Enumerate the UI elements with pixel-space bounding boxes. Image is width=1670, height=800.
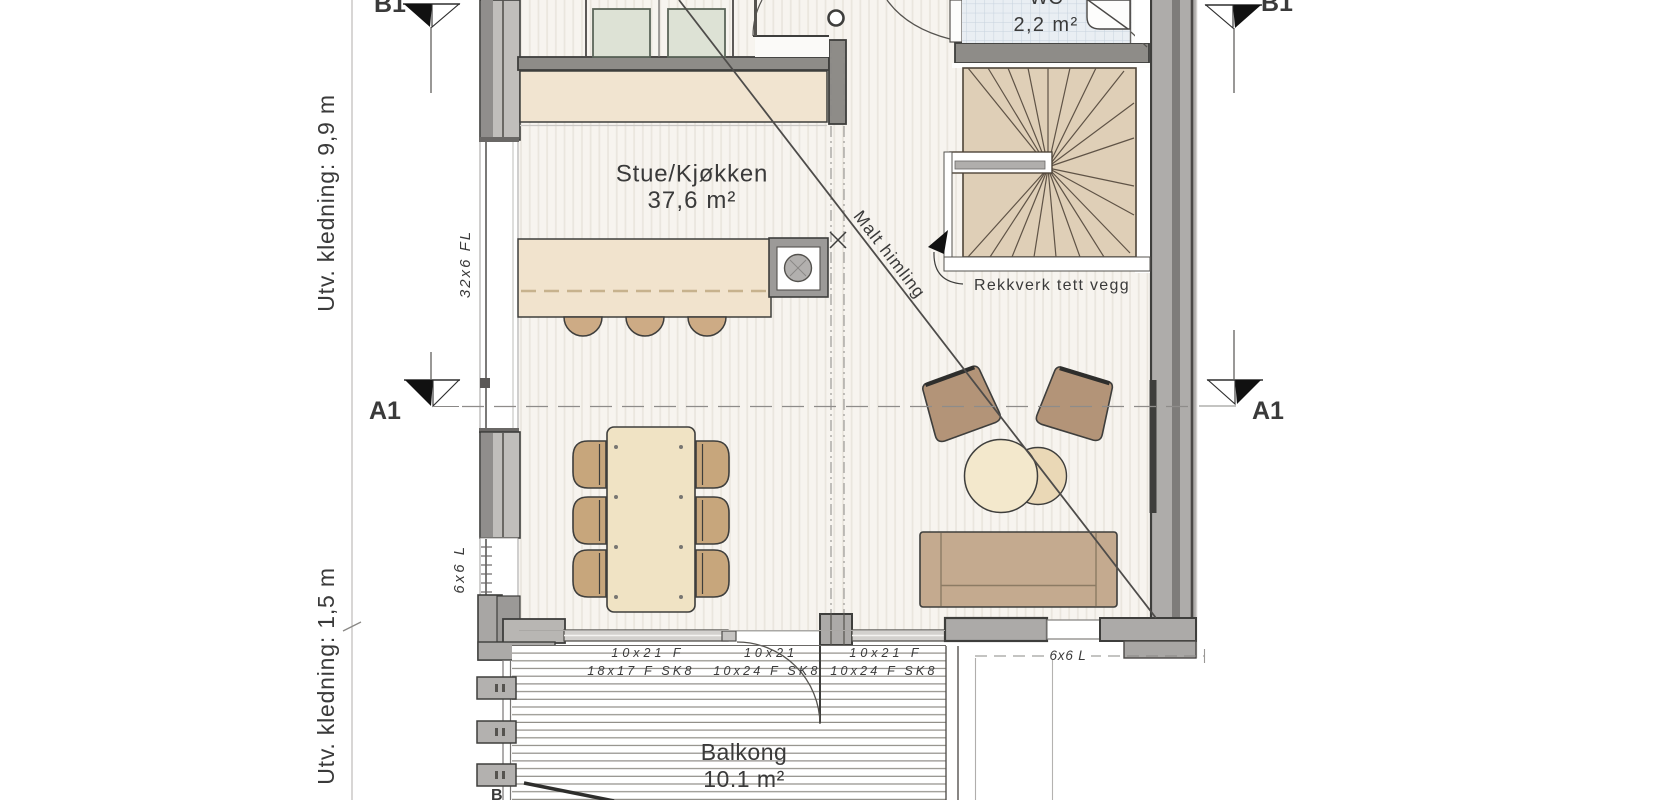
svg-text:Rekkverk tett vegg: Rekkverk tett vegg <box>974 277 1130 294</box>
svg-text:10x21 F: 10x21 F <box>611 646 684 660</box>
svg-text:10x24 F SK8: 10x24 F SK8 <box>713 664 820 678</box>
svg-text:37,6 m²: 37,6 m² <box>647 187 736 214</box>
svg-text:10x24 F SK8: 10x24 F SK8 <box>830 664 937 678</box>
svg-text:10x21: 10x21 <box>744 646 798 660</box>
svg-text:18x17 F SK8: 18x17 F SK8 <box>587 664 694 678</box>
svg-text:B: B <box>491 787 503 800</box>
svg-text:10.1 m²: 10.1 m² <box>703 766 784 792</box>
svg-text:WC: WC <box>1029 0 1062 9</box>
svg-text:A1: A1 <box>1252 397 1284 425</box>
svg-text:2,2 m²: 2,2 m² <box>1013 14 1078 36</box>
svg-text:B1: B1 <box>1261 0 1293 17</box>
svg-text:Utv. kledning: 9,9 m: Utv. kledning: 9,9 m <box>313 94 339 312</box>
svg-text:B1: B1 <box>374 0 406 18</box>
svg-text:6x6 L: 6x6 L <box>451 544 468 593</box>
svg-text:Utv. kledning: 1,5 m: Utv. kledning: 1,5 m <box>313 567 339 785</box>
svg-text:10x21 F: 10x21 F <box>849 646 922 660</box>
svg-text:6x6 L: 6x6 L <box>1049 648 1086 663</box>
svg-text:Balkong: Balkong <box>701 739 788 765</box>
svg-text:A1: A1 <box>369 397 401 425</box>
svg-text:32x6 FL: 32x6 FL <box>457 230 474 298</box>
svg-text:Stue/Kjøkken: Stue/Kjøkken <box>616 161 768 188</box>
